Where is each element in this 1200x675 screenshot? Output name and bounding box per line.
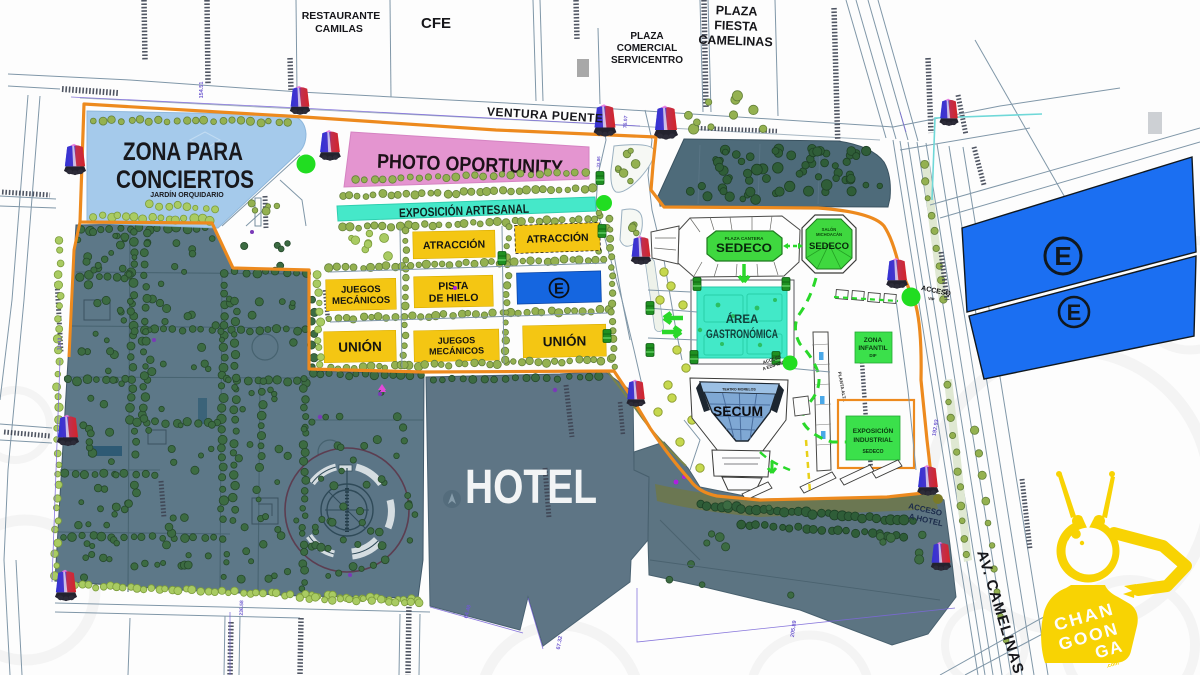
svg-text:PLAZA: PLAZA bbox=[716, 3, 758, 18]
svg-text:MECÁNICOS: MECÁNICOS bbox=[429, 345, 484, 356]
svg-text:SEDECO: SEDECO bbox=[809, 241, 849, 251]
svg-text:E: E bbox=[554, 280, 564, 297]
svg-text:ZONA: ZONA bbox=[864, 337, 883, 344]
svg-text:CAMELINAS: CAMELINAS bbox=[698, 33, 773, 50]
svg-text:ATRACCIÓN: ATRACCIÓN bbox=[526, 231, 589, 246]
svg-text:ATRACCIÓN: ATRACCIÓN bbox=[423, 238, 485, 252]
svg-text:DIF: DIF bbox=[869, 353, 877, 358]
svg-text:RESTAURANTE: RESTAURANTE bbox=[302, 10, 381, 22]
svg-text:JARDÍN ORQUIDARIO: JARDÍN ORQUIDARIO bbox=[150, 190, 224, 199]
svg-text:E: E bbox=[1054, 241, 1071, 271]
svg-text:FIESTA: FIESTA bbox=[714, 18, 758, 34]
svg-text:PLAZA CANTERA: PLAZA CANTERA bbox=[725, 236, 765, 241]
svg-text:SERVICENTRO: SERVICENTRO bbox=[611, 55, 683, 66]
svg-text:INFANTIL: INFANTIL bbox=[858, 345, 887, 352]
svg-text:236.58: 236.58 bbox=[239, 600, 246, 616]
svg-text:JUEGOS: JUEGOS bbox=[438, 335, 476, 346]
svg-text:E: E bbox=[1067, 300, 1082, 325]
svg-text:ZONA PARA: ZONA PARA bbox=[123, 138, 243, 166]
svg-text:INDUSTRIAL: INDUSTRIAL bbox=[853, 437, 892, 444]
svg-text:SECUM: SECUM bbox=[713, 403, 763, 419]
svg-text:DE HIELO: DE HIELO bbox=[429, 292, 479, 305]
svg-text:EXPOSICIÓN: EXPOSICIÓN bbox=[853, 426, 894, 435]
svg-text:CONCIERTOS: CONCIERTOS bbox=[116, 166, 254, 194]
svg-text:76.07: 76.07 bbox=[622, 115, 629, 128]
svg-text:154.51: 154.51 bbox=[199, 82, 205, 99]
svg-text:SEDECO: SEDECO bbox=[716, 243, 772, 255]
svg-text:CAMILAS: CAMILAS bbox=[315, 23, 363, 35]
svg-text:PISTA: PISTA bbox=[438, 280, 469, 293]
svg-text:UNIÓN: UNIÓN bbox=[338, 339, 382, 355]
svg-text:PLAZA: PLAZA bbox=[630, 31, 663, 42]
svg-text:COMERCIAL: COMERCIAL bbox=[617, 43, 678, 54]
svg-text:MECÁNICOS: MECÁNICOS bbox=[332, 295, 390, 307]
svg-text:33.86: 33.86 bbox=[596, 156, 602, 168]
svg-text:TEATRO MORELOS: TEATRO MORELOS bbox=[722, 388, 756, 392]
svg-text:SEDECO: SEDECO bbox=[862, 449, 883, 455]
svg-text:JUEGOS: JUEGOS bbox=[341, 284, 381, 296]
svg-text:ÁREA: ÁREA bbox=[726, 313, 759, 326]
svg-text:31.43: 31.43 bbox=[57, 337, 63, 350]
svg-text:GASTRONÓMICA: GASTRONÓMICA bbox=[706, 328, 778, 341]
svg-text:CFE: CFE bbox=[421, 15, 451, 32]
svg-text:UNIÓN: UNIÓN bbox=[543, 333, 587, 349]
svg-text:MICHOACÁN: MICHOACÁN bbox=[816, 232, 842, 237]
svg-text:HOTEL: HOTEL bbox=[465, 461, 597, 514]
